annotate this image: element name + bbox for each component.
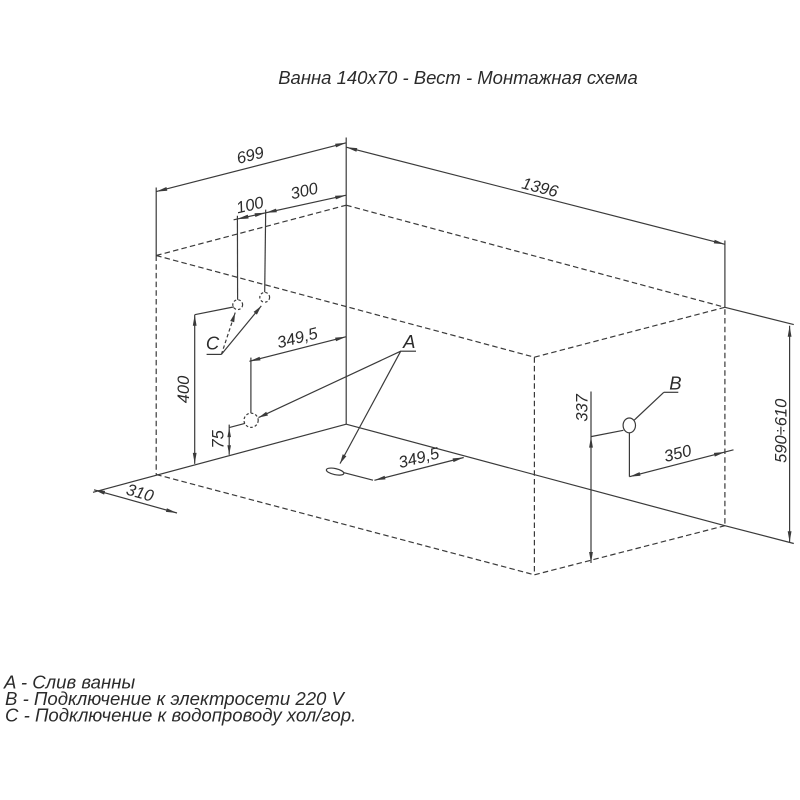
svg-text:C - Подключение к водопроводу: C - Подключение к водопроводу хол/гор. <box>5 705 356 726</box>
svg-text:C: C <box>206 332 220 353</box>
svg-text:Ванна 140x70 - Вест - Монтажна: Ванна 140x70 - Вест - Монтажная схема <box>278 67 638 88</box>
svg-text:75: 75 <box>210 429 228 448</box>
svg-text:A: A <box>402 331 415 352</box>
svg-text:B: B <box>669 373 681 394</box>
svg-text:337: 337 <box>573 393 591 421</box>
svg-text:400: 400 <box>175 375 193 403</box>
svg-text:590÷610: 590÷610 <box>772 398 790 463</box>
